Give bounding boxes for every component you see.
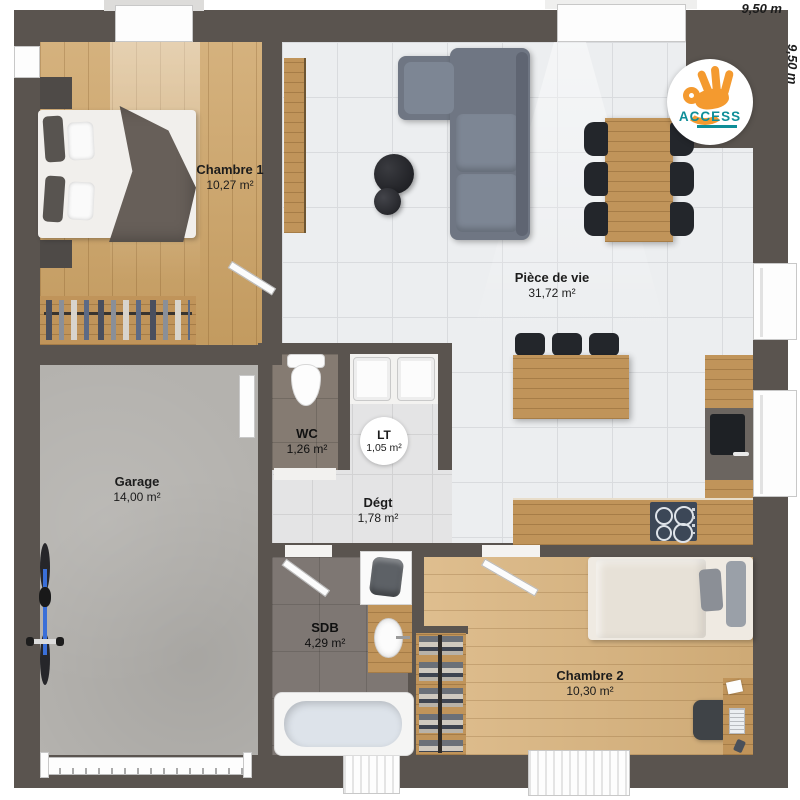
window-top-living <box>557 4 686 42</box>
sofa-cushion-1 <box>404 62 454 114</box>
dimension-right: 9,50 m <box>785 44 800 84</box>
closet-pole <box>438 635 442 753</box>
bed2-pillow-large <box>726 561 746 627</box>
logo-tagline-bar <box>697 125 737 128</box>
cabinet-living-wall <box>284 58 306 233</box>
sofa-cushion-3 <box>456 174 518 232</box>
sofa <box>398 48 530 240</box>
dining-chair <box>670 162 694 196</box>
washing-machine-1 <box>353 357 391 401</box>
wardrobe-chambre1 <box>40 296 196 345</box>
room-area: 4,29 m² <box>285 636 365 651</box>
cooktop-knobs <box>692 508 695 534</box>
door-garage-side <box>239 375 255 438</box>
entry-door-top <box>115 5 193 42</box>
wall-service-top <box>282 343 452 354</box>
washing-machine-2 <box>397 357 435 401</box>
nightstand-top <box>40 77 72 109</box>
label-lt-circle: LT 1,05 m² <box>360 417 408 465</box>
label-sdb: SDB 4,29 m² <box>285 620 365 651</box>
bicycle <box>26 543 66 693</box>
room-name: Chambre 2 <box>520 668 660 684</box>
bar-stool <box>552 333 582 356</box>
room-name: Dégt <box>338 495 418 511</box>
logo-hand-icon <box>667 59 753 145</box>
dining-chair <box>584 162 608 196</box>
desk-phone <box>733 739 746 754</box>
sofa-back <box>516 52 528 236</box>
wall-chambre1-bottom <box>14 345 282 365</box>
bar-stool <box>515 333 545 356</box>
garage-door-post-right <box>243 752 252 778</box>
bed2-pillow-small <box>699 568 724 611</box>
logo-wordmark: ACCESS <box>667 109 753 124</box>
towel <box>369 556 404 597</box>
label-garage: Garage 14,00 m² <box>67 474 207 505</box>
wall-service-right <box>438 343 452 470</box>
label-degt: Dégt 1,78 m² <box>338 495 418 526</box>
wall-chambre1-right <box>262 42 282 347</box>
window-frame-line <box>760 268 763 337</box>
label-chambre2: Chambre 2 10,30 m² <box>520 668 660 699</box>
sofa-cushion-2 <box>456 114 518 172</box>
toilet <box>287 354 325 406</box>
desk <box>723 678 753 755</box>
threshold-wc <box>274 468 336 480</box>
dining-chair <box>670 202 694 236</box>
floor-garage <box>40 365 258 755</box>
window-frame-line <box>760 395 763 494</box>
dining-chair <box>584 202 608 236</box>
burner <box>673 523 693 543</box>
room-name: Chambre 1 <box>160 162 300 178</box>
coffee-table-large <box>374 154 414 194</box>
dimension-top: 9,50 m <box>742 1 782 16</box>
shower-unit <box>360 551 412 605</box>
burner <box>655 507 673 525</box>
window-bottom-chambre2 <box>528 750 630 796</box>
toilet-bowl <box>291 364 321 406</box>
bike-grip-left <box>26 637 34 646</box>
window-left-chambre1 <box>14 46 40 78</box>
bike-grip-right <box>56 637 64 646</box>
pillow-dark-1 <box>42 115 65 162</box>
nightstand-bottom <box>40 240 72 268</box>
pillow-dark-2 <box>42 175 65 222</box>
burner <box>656 525 672 541</box>
kitchen-counter-bottom <box>513 498 753 545</box>
label-wc: WC 1,26 m² <box>267 426 347 457</box>
room-area: 10,27 m² <box>160 178 300 193</box>
bar-stool <box>589 333 619 356</box>
bed2-duvet <box>596 559 706 638</box>
label-chambre1: Chambre 1 10,27 m² <box>160 162 300 193</box>
garage-door-post-left <box>40 752 49 778</box>
room-name: LT <box>377 429 391 442</box>
bathtub <box>274 692 414 756</box>
floor-plan: Chambre 1 10,27 m² Pièce de vie 31,72 m²… <box>0 0 800 800</box>
bathtub-basin <box>284 701 402 747</box>
threshold-chambre2 <box>482 545 540 557</box>
kitchen-sink <box>710 414 745 455</box>
cooktop <box>650 502 697 541</box>
room-area: 1,26 m² <box>267 442 347 457</box>
desk-chair <box>693 700 725 740</box>
window-right-upper <box>753 263 797 340</box>
room-name: Pièce de vie <box>482 270 622 286</box>
bike-saddle <box>39 587 51 607</box>
room-area: 31,72 m² <box>482 286 622 301</box>
wall-sdb-chambre2-upper <box>410 557 424 633</box>
coffee-table-small <box>374 188 401 215</box>
room-name: SDB <box>285 620 365 636</box>
closet-chambre2 <box>416 633 466 755</box>
garage-door <box>47 757 245 775</box>
label-piece-de-vie: Pièce de vie 31,72 m² <box>482 270 622 301</box>
desk-paper <box>726 680 743 695</box>
dining-table <box>605 118 673 242</box>
hanging-clothes <box>46 300 190 340</box>
kitchen-island <box>513 355 629 419</box>
room-name: Garage <box>67 474 207 490</box>
bed-chambre2 <box>588 557 753 640</box>
kitchen-faucet <box>733 452 749 456</box>
vanity <box>368 605 412 673</box>
room-area: 10,30 m² <box>520 684 660 699</box>
dining-chair <box>584 122 608 156</box>
threshold-sdb <box>285 545 332 557</box>
room-area: 14,00 m² <box>67 490 207 505</box>
desk-keyboard <box>729 708 745 734</box>
pillow-white-2 <box>67 181 95 220</box>
room-name: WC <box>267 426 347 442</box>
room-area: 1,05 m² <box>366 442 402 454</box>
access-logo: ACCESS <box>667 59 753 145</box>
vanity-faucet <box>396 636 410 639</box>
window-right-lower <box>753 390 797 497</box>
pillow-white-1 <box>67 121 95 160</box>
room-area: 1,78 m² <box>338 511 418 526</box>
